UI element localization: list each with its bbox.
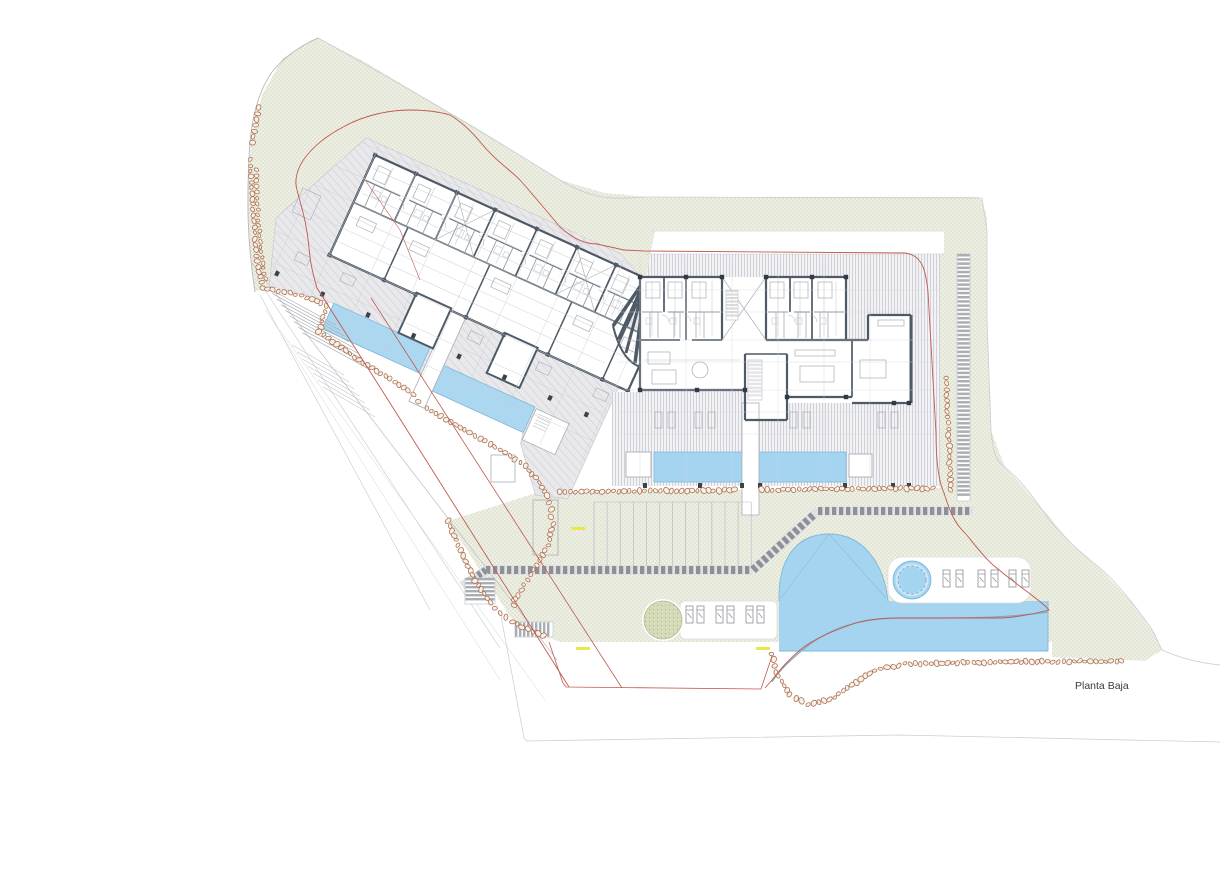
svg-text:Planta Baja: Planta Baja — [1075, 680, 1129, 692]
